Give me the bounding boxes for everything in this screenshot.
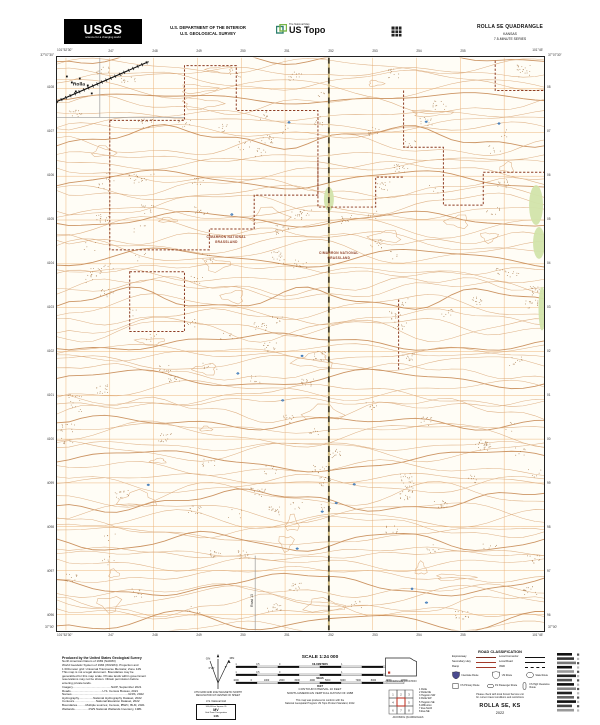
svg-text:MILES: MILES bbox=[316, 677, 324, 680]
route-shield-label: State Route bbox=[535, 674, 548, 677]
grid-tick-label: 96 bbox=[547, 614, 559, 617]
route-shield-item: State Route bbox=[526, 671, 548, 679]
grid-tick-label: 253 bbox=[368, 50, 382, 53]
grid-tick-label: 251 bbox=[280, 634, 294, 637]
svg-text:1: 1 bbox=[392, 693, 394, 697]
fs-route-item: FS Primary Route bbox=[452, 682, 487, 690]
svg-text:6000: 6000 bbox=[340, 679, 346, 682]
svg-text:1: 1 bbox=[341, 663, 343, 666]
grid-tick-label: 4108 bbox=[36, 86, 54, 89]
interstate-shield-icon bbox=[452, 671, 460, 679]
fs-route-label: FS Primary Route bbox=[461, 684, 487, 687]
grid-tick-label: 254 bbox=[412, 634, 426, 637]
ustopo-label: US Topo bbox=[289, 26, 325, 35]
svg-text:5: 5 bbox=[408, 701, 410, 705]
department-header: U.S. DEPARTMENT OF THE INTERIOR U.S. GEO… bbox=[146, 25, 270, 38]
sheet-year: 2022 bbox=[452, 711, 548, 715]
road-class-label: Ramp bbox=[452, 666, 476, 669]
sheet-name: ROLLA SE, KS bbox=[452, 703, 548, 709]
svg-text:4000: 4000 bbox=[310, 679, 316, 682]
svg-text:0.5: 0.5 bbox=[256, 671, 260, 674]
svg-text:7000: 7000 bbox=[356, 679, 362, 682]
svg-text:1000: 1000 bbox=[233, 679, 239, 682]
svg-text:MN: MN bbox=[230, 656, 235, 660]
usgs-logo: USGS science for a changing world bbox=[64, 19, 142, 44]
corner-lat-label: 37°00' bbox=[548, 626, 557, 629]
grid-tick-label: 4097 bbox=[36, 570, 54, 573]
svg-text:0.5: 0.5 bbox=[256, 663, 260, 666]
grid-tick-label: 255 bbox=[456, 634, 470, 637]
grid-tick-label: 03 bbox=[547, 306, 559, 309]
grid-tick-label: 253 bbox=[368, 634, 382, 637]
us-route-shield-icon bbox=[492, 671, 500, 679]
scale-title: SCALE 1:24 000 bbox=[237, 655, 403, 660]
svg-text:2000: 2000 bbox=[279, 679, 285, 682]
quadrangle-series: 7.5-MINUTE SERIES bbox=[440, 37, 580, 41]
grid-tick-label: 249 bbox=[192, 50, 206, 53]
usng-title: U.S. National Grid bbox=[196, 700, 236, 703]
grid-tick-label: 4096 bbox=[36, 614, 54, 617]
svg-text:1000: 1000 bbox=[264, 679, 270, 682]
grid-tick-label: 250 bbox=[236, 634, 250, 637]
svg-text:0: 0 bbox=[251, 679, 253, 682]
grid-tick-label: 4106 bbox=[36, 174, 54, 177]
corner-lon-label: 101°45' bbox=[503, 634, 543, 637]
corner-lat-label: 37°07'30" bbox=[28, 54, 54, 57]
grid-tick-label: 00 bbox=[547, 438, 559, 441]
svg-text:1: 1 bbox=[235, 663, 237, 666]
corner-lon-label: 101°52'30" bbox=[57, 634, 72, 637]
current-quad-cell bbox=[397, 698, 405, 706]
route-shield-item: US Route bbox=[492, 671, 512, 679]
quadrangle-title-block: ROLLA SE QUADRANGLE KANSAS 7.5-MINUTE SE… bbox=[440, 24, 580, 41]
grid-tick-label: 05 bbox=[547, 218, 559, 221]
corner-lon-label: 101°52'30" bbox=[57, 49, 72, 52]
svg-text:0°29': 0°29' bbox=[209, 666, 215, 670]
grid-tick-label: 4100 bbox=[36, 438, 54, 441]
grid-tick-label: 252 bbox=[324, 50, 338, 53]
grid-tick-label: 255 bbox=[456, 50, 470, 53]
corner-lon-label: 101°45' bbox=[503, 49, 543, 52]
grid-tick-label: 4105 bbox=[36, 218, 54, 221]
barcode bbox=[556, 652, 584, 714]
grid-tick-label: 247 bbox=[104, 50, 118, 53]
svg-text:5°: 5° bbox=[225, 665, 227, 669]
grid-tick-label: 07 bbox=[547, 130, 559, 133]
state-locator-map bbox=[384, 656, 418, 678]
grid-tick-label: 4102 bbox=[36, 350, 54, 353]
state-route-icon bbox=[526, 671, 534, 679]
svg-text:1: 1 bbox=[341, 671, 343, 674]
svg-text:8: 8 bbox=[408, 709, 410, 713]
road-class-row: Secondary HwyLocal Road bbox=[452, 661, 548, 664]
grid-tick-label: 08 bbox=[547, 86, 559, 89]
road-classification-title: ROAD CLASSIFICATION bbox=[452, 650, 548, 654]
road-class-label: 4WD bbox=[499, 666, 525, 669]
adjoining-quadrangles-caption: ADJOINING QUADRANGLES bbox=[376, 717, 440, 720]
map-neatline bbox=[56, 56, 545, 632]
grid-tick-label: 04 bbox=[547, 262, 559, 265]
vertical-datum-line: NORTH AMERICAN VERTICAL DATUM OF 1988 bbox=[237, 692, 403, 696]
svg-text:4: 4 bbox=[392, 701, 394, 705]
standard-note: This map was produced to conform with th… bbox=[237, 699, 403, 705]
usgs-topo-sheet: USGS science for a changing world U.S. D… bbox=[0, 0, 600, 725]
production-credits: Produced by the United States Geological… bbox=[62, 656, 187, 686]
standard-note-line2: National Geospatial Program US Topo Prod… bbox=[237, 702, 403, 705]
usng-block: U.S. National Grid 100,000-m Square ID M… bbox=[196, 700, 236, 720]
adjoining-quadrangles-list: 1 Rolla2 Rolla NE3 Hugoton SW4 Rolla SW5… bbox=[419, 688, 449, 713]
fs-route-icon bbox=[452, 682, 459, 690]
contour-interval-note: CONTOUR INTERVAL 10 FEET NORTH AMERICAN … bbox=[237, 688, 403, 696]
svg-text:GN: GN bbox=[206, 657, 211, 661]
adjoining-quadrangles-grid: 12345678 bbox=[388, 689, 414, 715]
road-sample-line bbox=[525, 657, 545, 658]
corner-lat-label: 37°00' bbox=[28, 626, 54, 629]
grid-tick-label: 251 bbox=[280, 50, 294, 53]
road-class-row: Ramp4WD bbox=[452, 666, 548, 669]
grid-tick-label: 250 bbox=[236, 50, 250, 53]
road-sample-line bbox=[476, 667, 496, 668]
grid-tick-label: 248 bbox=[148, 634, 162, 637]
road-classification-legend: ROAD CLASSIFICATION ExpresswayLocal Conn… bbox=[452, 650, 548, 715]
route-shield-label: US Route bbox=[502, 674, 512, 677]
route-shield-label: Interstate Route bbox=[462, 674, 479, 677]
fs-route-label: FS High Clearance Route bbox=[530, 683, 556, 689]
grid-tick-label: 4099 bbox=[36, 482, 54, 485]
road-class-row: ExpresswayLocal Connector bbox=[452, 656, 548, 659]
quad-location-marker bbox=[388, 672, 390, 674]
quadrangle-state: KANSAS bbox=[440, 32, 580, 36]
road-class-label: Secondary Hwy bbox=[452, 661, 476, 664]
usgs-tagline: science for a changing world bbox=[85, 36, 120, 40]
svg-text:0: 0 bbox=[279, 671, 281, 674]
grid-tick-label: 252 bbox=[324, 634, 338, 637]
grid-tick-label: 99 bbox=[547, 482, 559, 485]
dept-line2: U.S. GEOLOGICAL SURVEY bbox=[146, 31, 270, 37]
grid-tick-label: 4104 bbox=[36, 262, 54, 265]
fs-route-icon bbox=[487, 682, 494, 690]
svg-text:1: 1 bbox=[235, 671, 237, 674]
road-class-label: Local Connector bbox=[499, 656, 525, 659]
grid-logo-icon bbox=[391, 26, 402, 37]
grid-tick-label: 4107 bbox=[36, 130, 54, 133]
fs-route-item: FS Passenger Route bbox=[487, 682, 522, 690]
road-class-label: Local Road bbox=[499, 661, 525, 664]
fs-note-line2: for current travel conditions and restri… bbox=[452, 696, 548, 699]
svg-text:6: 6 bbox=[392, 709, 394, 713]
corner-lat-label: 37°07'30" bbox=[548, 54, 562, 57]
road-sample-line bbox=[476, 662, 496, 663]
ustopo-logo-icon bbox=[276, 24, 287, 35]
fs-route-label: FS Passenger Route bbox=[495, 684, 521, 687]
grid-tick-label: 248 bbox=[148, 50, 162, 53]
svg-text:7: 7 bbox=[400, 709, 402, 713]
adjoining-quad-name: 8 Eva NE bbox=[419, 710, 449, 713]
fs-route-item: FS High Clearance Route bbox=[521, 682, 556, 690]
grid-tick-label: 06 bbox=[547, 174, 559, 177]
grid-tick-label: 01 bbox=[547, 394, 559, 397]
quadrangle-location-caption: QUADRANGLE LOCATION bbox=[374, 680, 428, 683]
grid-tick-label: 98 bbox=[547, 526, 559, 529]
svg-text:2: 2 bbox=[400, 693, 402, 697]
ustopo-logo: The National Map US Topo bbox=[276, 23, 325, 35]
grid-tick-label: 4098 bbox=[36, 526, 54, 529]
route-shield-item: Interstate Route bbox=[452, 671, 479, 679]
quadrangle-title: ROLLA SE QUADRANGLE bbox=[440, 24, 580, 30]
grid-tick-label: 02 bbox=[547, 350, 559, 353]
svg-text:0: 0 bbox=[279, 663, 281, 666]
grid-tick-label: 249 bbox=[192, 634, 206, 637]
svg-text:5000: 5000 bbox=[325, 679, 331, 682]
grid-tick-label: 4101 bbox=[36, 394, 54, 397]
grid-tick-label: 4103 bbox=[36, 306, 54, 309]
road-class-label: Expressway bbox=[452, 656, 476, 659]
svg-text:3000: 3000 bbox=[294, 679, 300, 682]
road-sample-line bbox=[476, 657, 496, 658]
usng-gzd: 14S bbox=[198, 714, 234, 718]
road-sample-line bbox=[525, 667, 545, 668]
true-north-star bbox=[217, 654, 219, 657]
grid-tick-label: 247 bbox=[104, 634, 118, 637]
grid-tick-label: 97 bbox=[547, 570, 559, 573]
grid-tick-label: 254 bbox=[412, 50, 426, 53]
road-sample-line bbox=[525, 662, 545, 663]
svg-text:3: 3 bbox=[408, 693, 410, 697]
fs-route-icon bbox=[521, 682, 528, 690]
svg-text:KILOMETERS: KILOMETERS bbox=[312, 663, 328, 666]
